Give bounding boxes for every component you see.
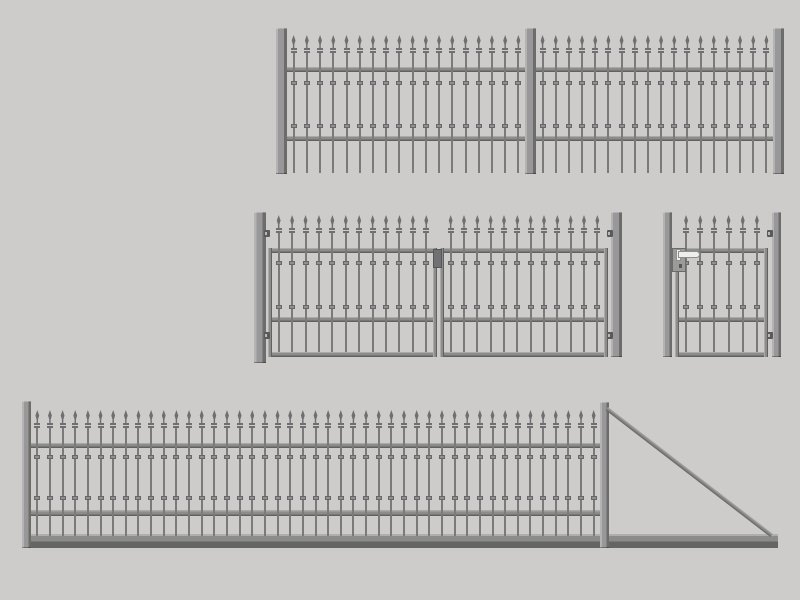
picket-knob (300, 496, 306, 500)
spear-finial (502, 410, 508, 423)
spear-collar (224, 423, 230, 425)
picket-knob (123, 455, 129, 459)
spear-finial (401, 410, 407, 423)
spear-finial (98, 410, 104, 423)
picket-knob (72, 496, 78, 500)
picket-bar (416, 428, 418, 536)
spear-collar (173, 423, 179, 425)
spear-finial (148, 410, 154, 423)
picket-knob (527, 496, 533, 500)
spear-collar (426, 426, 432, 428)
picket-bar (428, 428, 430, 536)
picket-knob (98, 455, 104, 459)
spear-collar (85, 423, 91, 425)
picket-knob (60, 496, 66, 500)
spear-collar (527, 426, 533, 428)
picket-knob (173, 496, 179, 500)
spear-finial (591, 410, 597, 423)
spear-collar (313, 423, 319, 425)
spear-collar (60, 423, 66, 425)
picket-knob (148, 455, 154, 459)
spear-collar (578, 426, 584, 428)
spear-finial (313, 410, 319, 423)
picket-knob (262, 455, 268, 459)
spear-collar (515, 426, 521, 428)
picket-knob (376, 455, 382, 459)
picket-bar (49, 428, 51, 536)
picket-bar (352, 428, 354, 536)
picket-knob (414, 496, 420, 500)
picket-knob (515, 496, 521, 500)
picket-knob (477, 455, 483, 459)
spear-collar (300, 423, 306, 425)
picket-bar (555, 428, 557, 536)
picket-knob (287, 496, 293, 500)
spear-collar (287, 423, 293, 425)
fence-post (22, 401, 31, 548)
spear-collar (98, 423, 104, 425)
spear-collar (363, 426, 369, 428)
spear-collar (527, 423, 533, 425)
spear-collar (401, 423, 407, 425)
picket-knob (135, 496, 141, 500)
spear-collar (110, 423, 116, 425)
spear-collar (300, 426, 306, 428)
picket-knob (123, 496, 129, 500)
picket-knob (34, 455, 40, 459)
spear-collar (85, 426, 91, 428)
picket-knob (540, 455, 546, 459)
picket-knob (565, 496, 571, 500)
picket-knob (591, 496, 597, 500)
spear-finial (578, 410, 584, 423)
spear-collar (477, 426, 483, 428)
spear-collar (47, 426, 53, 428)
picket-knob (60, 455, 66, 459)
spear-collar (452, 423, 458, 425)
spear-finial (414, 410, 420, 423)
spear-collar (199, 426, 205, 428)
spear-collar (135, 423, 141, 425)
spear-collar (490, 426, 496, 428)
picket-bar (125, 428, 127, 536)
picket-bar (289, 428, 291, 536)
spear-collar (224, 426, 230, 428)
picket-bar (74, 428, 76, 536)
picket-bar (504, 428, 506, 536)
spear-collar (388, 426, 394, 428)
spear-collar (275, 426, 281, 428)
picket-bar (580, 428, 582, 536)
picket-knob (553, 455, 559, 459)
picket-bar (163, 428, 165, 536)
spear-collar (477, 423, 483, 425)
spear-finial (300, 410, 306, 423)
spear-collar (591, 423, 597, 425)
spear-collar (515, 423, 521, 425)
spear-collar (363, 423, 369, 425)
spear-collar (325, 423, 331, 425)
picket-bar (479, 428, 481, 536)
spear-collar (262, 423, 268, 425)
spear-collar (553, 426, 559, 428)
spear-collar (452, 426, 458, 428)
spear-collar (439, 426, 445, 428)
spear-finial (161, 410, 167, 423)
picket-knob (249, 496, 255, 500)
picket-knob (85, 455, 91, 459)
picket-knob (490, 455, 496, 459)
picket-bar (492, 428, 494, 536)
picket-bar (188, 428, 190, 536)
spear-finial (553, 410, 559, 423)
spear-finial (350, 410, 356, 423)
spear-finial (452, 410, 458, 423)
picket-knob (414, 455, 420, 459)
picket-knob (148, 496, 154, 500)
spear-collar (565, 423, 571, 425)
spear-collar (591, 426, 597, 428)
picket-bar (315, 428, 317, 536)
spear-collar (338, 426, 344, 428)
diagonal-brace (606, 407, 773, 537)
picket-knob (249, 455, 255, 459)
spear-finial (237, 410, 243, 423)
picket-knob (350, 496, 356, 500)
picket-knob (338, 455, 344, 459)
spear-collar (34, 423, 40, 425)
picket-knob (426, 455, 432, 459)
picket-bar (137, 428, 139, 536)
spear-finial (376, 410, 382, 423)
fence-post (600, 402, 609, 548)
spear-collar (186, 426, 192, 428)
picket-knob (275, 455, 281, 459)
picket-bar (441, 428, 443, 536)
spear-collar (123, 426, 129, 428)
spear-collar (350, 423, 356, 425)
picket-knob (527, 455, 533, 459)
picket-knob (452, 496, 458, 500)
spear-collar (161, 426, 167, 428)
picket-knob (173, 455, 179, 459)
spear-finial (123, 410, 129, 423)
picket-bar (251, 428, 253, 536)
spear-collar (287, 426, 293, 428)
picket-bar (175, 428, 177, 536)
picket-knob (47, 496, 53, 500)
spear-finial (565, 410, 571, 423)
spear-collar (148, 426, 154, 428)
picket-bar (567, 428, 569, 536)
picket-knob (363, 455, 369, 459)
picket-knob (388, 455, 394, 459)
picket-knob (515, 455, 521, 459)
spear-collar (502, 426, 508, 428)
spear-collar (502, 423, 508, 425)
picket-bar (340, 428, 342, 536)
spear-collar (60, 426, 66, 428)
spear-finial (490, 410, 496, 423)
spear-finial (135, 410, 141, 423)
picket-bar (264, 428, 266, 536)
spear-finial (60, 410, 66, 423)
picket-knob (110, 496, 116, 500)
picket-knob (452, 455, 458, 459)
spear-finial (224, 410, 230, 423)
picket-knob (464, 455, 470, 459)
picket-knob (135, 455, 141, 459)
cantilever-sliding-gate (0, 0, 800, 600)
spear-finial (477, 410, 483, 423)
spear-collar (199, 423, 205, 425)
picket-knob (85, 496, 91, 500)
spear-collar (161, 423, 167, 425)
picket-knob (161, 455, 167, 459)
spear-collar (237, 423, 243, 425)
spear-collar (426, 423, 432, 425)
spear-collar (490, 423, 496, 425)
picket-knob (262, 496, 268, 500)
picket-knob (287, 455, 293, 459)
spear-finial (173, 410, 179, 423)
picket-knob (211, 455, 217, 459)
spear-collar (414, 426, 420, 428)
spear-finial (426, 410, 432, 423)
spear-collar (110, 426, 116, 428)
spear-collar (186, 423, 192, 425)
spear-collar (34, 426, 40, 428)
spear-collar (98, 426, 104, 428)
picket-knob (325, 496, 331, 500)
picket-bar (593, 428, 595, 536)
spear-finial (186, 410, 192, 423)
picket-knob (502, 496, 508, 500)
spear-finial (540, 410, 546, 423)
picket-bar (403, 428, 405, 536)
picket-knob (325, 455, 331, 459)
picket-bar (517, 428, 519, 536)
picket-knob (98, 496, 104, 500)
spear-finial (199, 410, 205, 423)
picket-knob (363, 496, 369, 500)
spear-finial (515, 410, 521, 423)
spear-finial (34, 410, 40, 423)
picket-bar (213, 428, 215, 536)
picket-knob (313, 496, 319, 500)
spear-collar (325, 426, 331, 428)
spear-finial (363, 410, 369, 423)
picket-bar (378, 428, 380, 536)
picket-bar (62, 428, 64, 536)
picket-knob (338, 496, 344, 500)
picket-knob (388, 496, 394, 500)
spear-collar (414, 423, 420, 425)
picket-knob (199, 496, 205, 500)
spear-finial (275, 410, 281, 423)
spear-finial (47, 410, 53, 423)
picket-knob (110, 455, 116, 459)
spear-finial (72, 410, 78, 423)
picket-bar (302, 428, 304, 536)
picket-knob (350, 455, 356, 459)
picket-knob (578, 496, 584, 500)
scene-canvas (0, 0, 800, 600)
spear-finial (388, 410, 394, 423)
picket-knob (300, 455, 306, 459)
picket-bar (277, 428, 279, 536)
picket-bar (390, 428, 392, 536)
picket-knob (186, 496, 192, 500)
picket-knob (540, 496, 546, 500)
picket-knob (578, 455, 584, 459)
spear-collar (211, 426, 217, 428)
spear-collar (313, 426, 319, 428)
spear-finial (110, 410, 116, 423)
spear-collar (123, 423, 129, 425)
spear-collar (47, 423, 53, 425)
spear-collar (72, 423, 78, 425)
picket-bar (100, 428, 102, 536)
spear-collar (249, 426, 255, 428)
spear-collar (135, 426, 141, 428)
picket-knob (502, 455, 508, 459)
picket-knob (275, 496, 281, 500)
spear-finial (325, 410, 331, 423)
picket-bar (36, 428, 38, 536)
spear-collar (578, 423, 584, 425)
picket-bar (365, 428, 367, 536)
spear-finial (527, 410, 533, 423)
picket-knob (426, 496, 432, 500)
spear-collar (72, 426, 78, 428)
spear-collar (565, 426, 571, 428)
picket-knob (186, 455, 192, 459)
picket-bar (239, 428, 241, 536)
spear-collar (376, 423, 382, 425)
spear-collar (350, 426, 356, 428)
picket-knob (34, 496, 40, 500)
spear-collar (439, 423, 445, 425)
spear-collar (275, 423, 281, 425)
picket-bar (150, 428, 152, 536)
picket-bar (87, 428, 89, 536)
spear-collar (237, 426, 243, 428)
picket-knob (490, 496, 496, 500)
picket-bar (542, 428, 544, 536)
picket-knob (439, 496, 445, 500)
picket-bar (529, 428, 531, 536)
spear-finial (249, 410, 255, 423)
picket-knob (211, 496, 217, 500)
spear-collar (464, 423, 470, 425)
picket-knob (565, 455, 571, 459)
picket-knob (47, 455, 53, 459)
spear-collar (249, 423, 255, 425)
picket-bar (112, 428, 114, 536)
spear-finial (85, 410, 91, 423)
picket-knob (313, 455, 319, 459)
picket-bar (454, 428, 456, 536)
spear-collar (464, 426, 470, 428)
spear-collar (540, 423, 546, 425)
picket-knob (161, 496, 167, 500)
picket-knob (199, 455, 205, 459)
picket-knob (401, 496, 407, 500)
spear-finial (439, 410, 445, 423)
picket-knob (553, 496, 559, 500)
picket-bar (201, 428, 203, 536)
picket-knob (224, 496, 230, 500)
picket-knob (591, 455, 597, 459)
spear-finial (262, 410, 268, 423)
spear-collar (401, 426, 407, 428)
spear-collar (338, 423, 344, 425)
spear-collar (540, 426, 546, 428)
spear-collar (262, 426, 268, 428)
spear-finial (211, 410, 217, 423)
spear-finial (464, 410, 470, 423)
spear-collar (211, 423, 217, 425)
picket-knob (439, 455, 445, 459)
picket-bar (226, 428, 228, 536)
picket-knob (237, 496, 243, 500)
picket-bar (466, 428, 468, 536)
spear-finial (338, 410, 344, 423)
spear-collar (388, 423, 394, 425)
spear-collar (553, 423, 559, 425)
spear-collar (148, 423, 154, 425)
picket-knob (477, 496, 483, 500)
picket-bar (327, 428, 329, 536)
picket-knob (237, 455, 243, 459)
spear-collar (173, 426, 179, 428)
gate-bottom-track (28, 534, 778, 548)
picket-knob (376, 496, 382, 500)
picket-knob (72, 455, 78, 459)
spear-finial (287, 410, 293, 423)
picket-knob (464, 496, 470, 500)
picket-knob (401, 455, 407, 459)
picket-knob (224, 455, 230, 459)
spear-collar (376, 426, 382, 428)
